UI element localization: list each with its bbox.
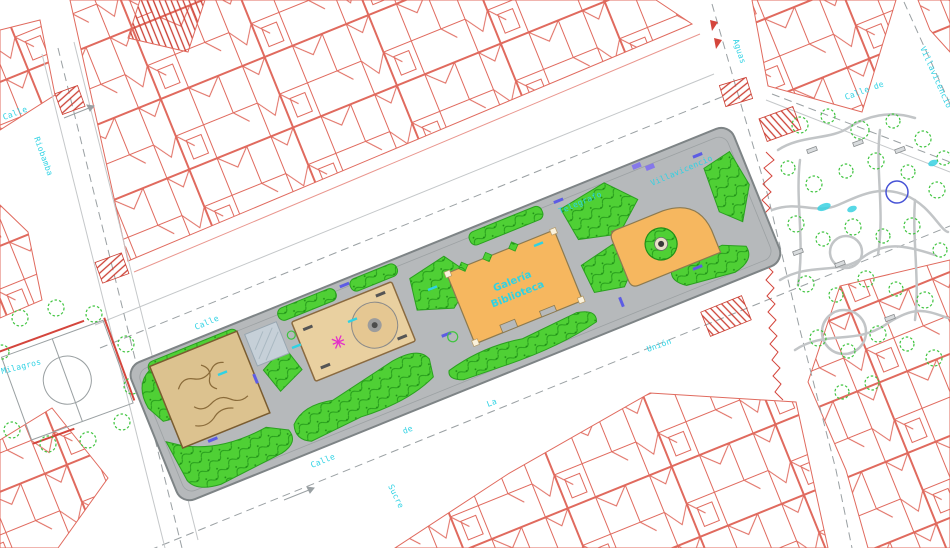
street-label: de (401, 424, 414, 436)
park-fence-zigzag (762, 152, 783, 400)
red-arrow (714, 38, 722, 49)
crosswalk (701, 296, 752, 337)
court-red-line (104, 318, 134, 401)
street-label: Sucre (386, 483, 405, 510)
street-label: Aguas (731, 38, 747, 65)
crosswalk (719, 77, 752, 106)
block-southwest (0, 408, 108, 548)
court-red-line (0, 321, 84, 353)
park-path (778, 114, 915, 150)
street-label: Milagros (0, 357, 42, 376)
street-label: Riobamba (32, 136, 54, 178)
site-plan-canvas[interactable]: Galería Biblioteca (0, 0, 950, 548)
street-label: Calle (309, 452, 336, 470)
street-label: Unión (645, 336, 672, 354)
street-label: La (485, 397, 498, 409)
block-northeast (752, 0, 896, 112)
block-southeast-b (808, 260, 950, 548)
crosswalk (55, 86, 85, 115)
crosswalk (759, 107, 801, 142)
street-label: Calle (193, 314, 220, 332)
block-southeast-a (395, 393, 828, 548)
street-label: Villavicencio (918, 45, 950, 109)
crosswalk (95, 253, 129, 283)
park-round-plaza (830, 236, 862, 268)
block-left-mid (0, 205, 42, 318)
